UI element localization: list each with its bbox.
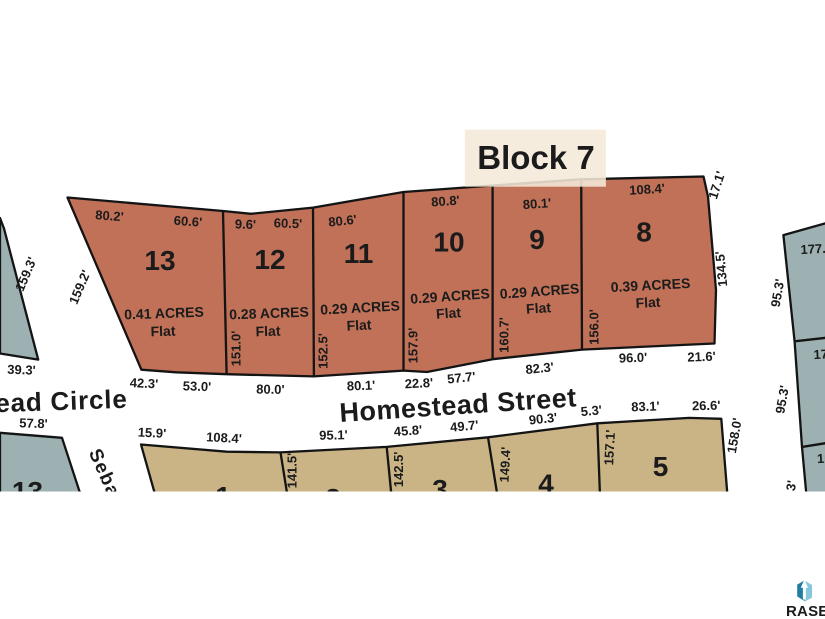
- svg-text:149.4': 149.4': [497, 446, 514, 482]
- svg-text:158.0': 158.0': [724, 417, 745, 455]
- svg-text:11: 11: [344, 238, 374, 269]
- svg-text:60.5': 60.5': [274, 215, 303, 231]
- svg-text:80.8': 80.8': [431, 193, 460, 210]
- svg-text:80.0': 80.0': [256, 381, 285, 396]
- svg-text:12: 12: [254, 244, 285, 275]
- svg-text:96.0': 96.0': [619, 350, 648, 366]
- svg-text:159.2': 159.2': [66, 268, 94, 307]
- svg-text:141.5': 141.5': [285, 453, 300, 489]
- svg-text:108.4': 108.4': [206, 429, 242, 446]
- svg-text:4: 4: [538, 469, 554, 500]
- svg-text:57.8': 57.8': [19, 415, 48, 431]
- svg-text:0.28 ACRES: 0.28 ACRES: [229, 304, 309, 323]
- svg-text:9: 9: [529, 224, 545, 255]
- svg-text:15.9': 15.9': [137, 424, 166, 440]
- svg-text:17.1': 17.1': [705, 169, 728, 201]
- svg-text:21.6': 21.6': [687, 349, 716, 365]
- svg-text:83.1': 83.1': [631, 398, 660, 414]
- svg-text:176.6': 176.6': [813, 345, 825, 362]
- svg-text:95.3': 95.3': [768, 278, 788, 309]
- svg-text:80.1': 80.1': [522, 195, 551, 212]
- svg-text:3: 3: [432, 474, 448, 505]
- svg-text:26.6': 26.6': [692, 398, 721, 413]
- svg-text:2: 2: [325, 483, 341, 514]
- svg-text:Block 7: Block 7: [477, 139, 594, 176]
- svg-text:45.8': 45.8': [393, 422, 422, 439]
- svg-text:RASE: RASE: [786, 603, 825, 619]
- svg-text:Flat: Flat: [635, 294, 661, 311]
- svg-text:Flat: Flat: [346, 316, 372, 333]
- svg-text:ead Circle: ead Circle: [0, 384, 128, 419]
- svg-text:158.1': 158.1': [817, 449, 825, 466]
- svg-text:13: 13: [144, 245, 175, 276]
- svg-text:82.3': 82.3': [525, 359, 555, 377]
- svg-text:95.3': 95.3': [780, 479, 800, 510]
- svg-text:53.0': 53.0': [183, 378, 212, 394]
- svg-text:134.5': 134.5': [712, 251, 730, 288]
- svg-text:8: 8: [636, 217, 652, 248]
- svg-text:10: 10: [433, 227, 464, 258]
- svg-text:42.3': 42.3': [129, 375, 158, 391]
- svg-text:9.6': 9.6': [235, 216, 257, 232]
- svg-text:95.3': 95.3': [772, 384, 792, 415]
- svg-text:177.4': 177.4': [800, 240, 825, 257]
- svg-text:5.3': 5.3': [580, 402, 602, 419]
- svg-text:0.41 ACRES: 0.41 ACRES: [124, 304, 204, 323]
- svg-text:Flat: Flat: [436, 304, 462, 322]
- svg-text:13: 13: [12, 476, 43, 507]
- svg-text:156.0': 156.0': [587, 309, 602, 345]
- svg-text:1: 1: [215, 481, 231, 512]
- svg-text:157.9': 157.9': [406, 328, 421, 364]
- svg-text:95.1': 95.1': [319, 427, 348, 442]
- svg-text:80.6': 80.6': [328, 212, 358, 230]
- svg-text:80.1': 80.1': [347, 378, 376, 394]
- svg-text:60.6': 60.6': [173, 213, 202, 230]
- svg-text:Flat: Flat: [150, 323, 176, 340]
- svg-text:22.8': 22.8': [404, 375, 433, 391]
- svg-text:57.7': 57.7': [446, 369, 476, 387]
- svg-text:108.4': 108.4': [629, 181, 665, 198]
- svg-text:5: 5: [653, 451, 669, 482]
- svg-text:142.5': 142.5': [391, 452, 406, 488]
- svg-text:157.1': 157.1': [601, 429, 618, 465]
- svg-text:39.3': 39.3': [7, 362, 36, 378]
- svg-text:151.0': 151.0': [229, 331, 244, 367]
- svg-text:160.7': 160.7': [496, 317, 511, 353]
- svg-text:152.5': 152.5': [315, 333, 330, 369]
- svg-text:Flat: Flat: [255, 323, 281, 340]
- svg-text:Flat: Flat: [526, 299, 552, 317]
- svg-text:80.2': 80.2': [95, 207, 124, 224]
